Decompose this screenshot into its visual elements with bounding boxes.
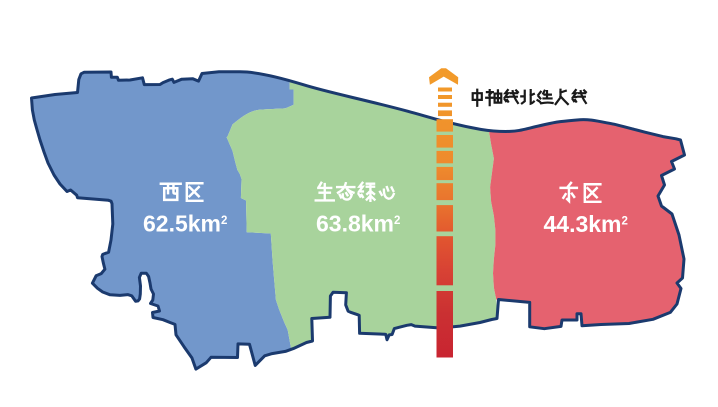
svg-text:62.5km2: 62.5km2 [143, 211, 227, 237]
svg-text:44.3km2: 44.3km2 [544, 211, 628, 237]
svg-text:63.8km2: 63.8km2 [316, 211, 400, 237]
